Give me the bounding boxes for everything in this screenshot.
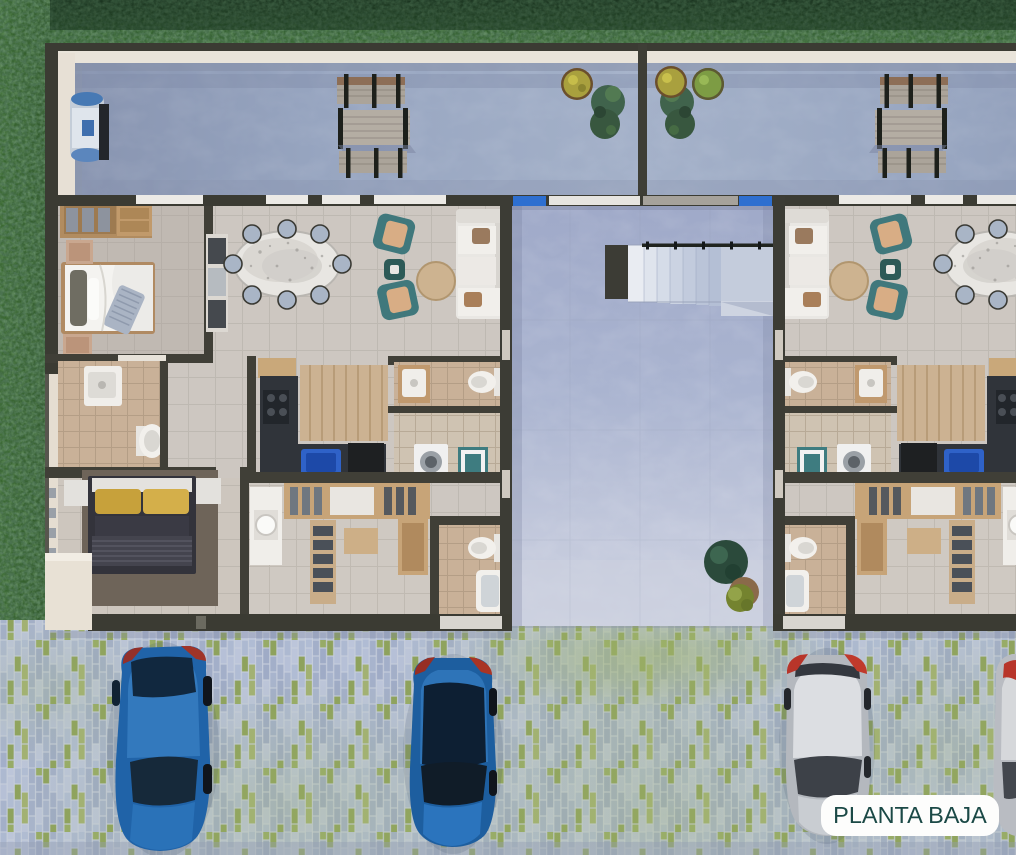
svg-text:PLANTA BAJA: PLANTA BAJA	[833, 802, 987, 828]
